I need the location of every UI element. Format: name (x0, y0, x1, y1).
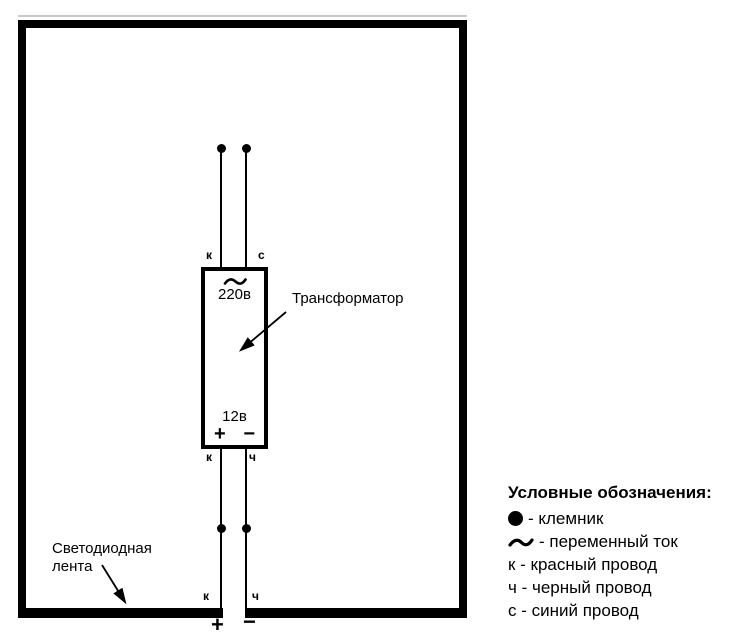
wire-bottom-red (220, 449, 222, 618)
legend-item-terminal: - клемник (508, 507, 723, 530)
wire-top-red (220, 149, 222, 267)
wiring-diagram: к с к ч к ч 220в 12в + − Трансформатор С… (0, 0, 730, 636)
terminal-dot-icon (217, 524, 226, 533)
terminal-dot-icon (242, 144, 251, 153)
terminal-dot-icon (508, 511, 523, 526)
transformer-pointer-arrow-icon (230, 304, 294, 360)
led-strip-pointer-arrow-icon (94, 558, 138, 610)
transformer-minus-terminal: − (243, 425, 255, 443)
wire-label-mid-left: к (206, 451, 212, 463)
wire-label-bottom-right: ч (252, 590, 259, 602)
terminal-dot-icon (242, 524, 251, 533)
wire-bottom-black (245, 449, 247, 618)
primary-voltage: 220в (218, 287, 251, 303)
wire-label-bottom-left: к (203, 590, 209, 602)
legend-title: Условные обозначения: (508, 483, 723, 503)
legend-item-blue-wire: с - синий провод (508, 599, 723, 622)
legend: Условные обозначения: - клемник - переме… (508, 483, 723, 622)
ac-tilde-icon (508, 535, 534, 549)
transformer-plus-terminal: + (214, 425, 226, 443)
wire-top-blue (245, 149, 247, 267)
legend-item-text: с - синий провод (508, 601, 639, 621)
terminal-dot-icon (217, 144, 226, 153)
legend-item-ac: - переменный ток (508, 530, 723, 553)
legend-item-black-wire: ч - черный провод (508, 576, 723, 599)
wire-label-top-right: с (258, 249, 265, 261)
wire-label-top-left: к (206, 249, 212, 261)
transformer-label: Трансформатор (292, 291, 404, 307)
output-plus-label: + (211, 615, 224, 635)
output-minus-label: − (243, 612, 256, 632)
legend-item-text: ч - черный провод (508, 578, 652, 598)
legend-item-text: - переменный ток (539, 532, 678, 552)
wire-label-mid-right: ч (249, 451, 256, 463)
legend-item-text: - клемник (528, 509, 603, 529)
led-strip-right-segment (246, 608, 467, 618)
legend-item-red-wire: к - красный провод (508, 553, 723, 576)
led-strip-label-line1: Светодиодная (52, 540, 152, 558)
legend-item-text: к - красный провод (508, 555, 657, 575)
